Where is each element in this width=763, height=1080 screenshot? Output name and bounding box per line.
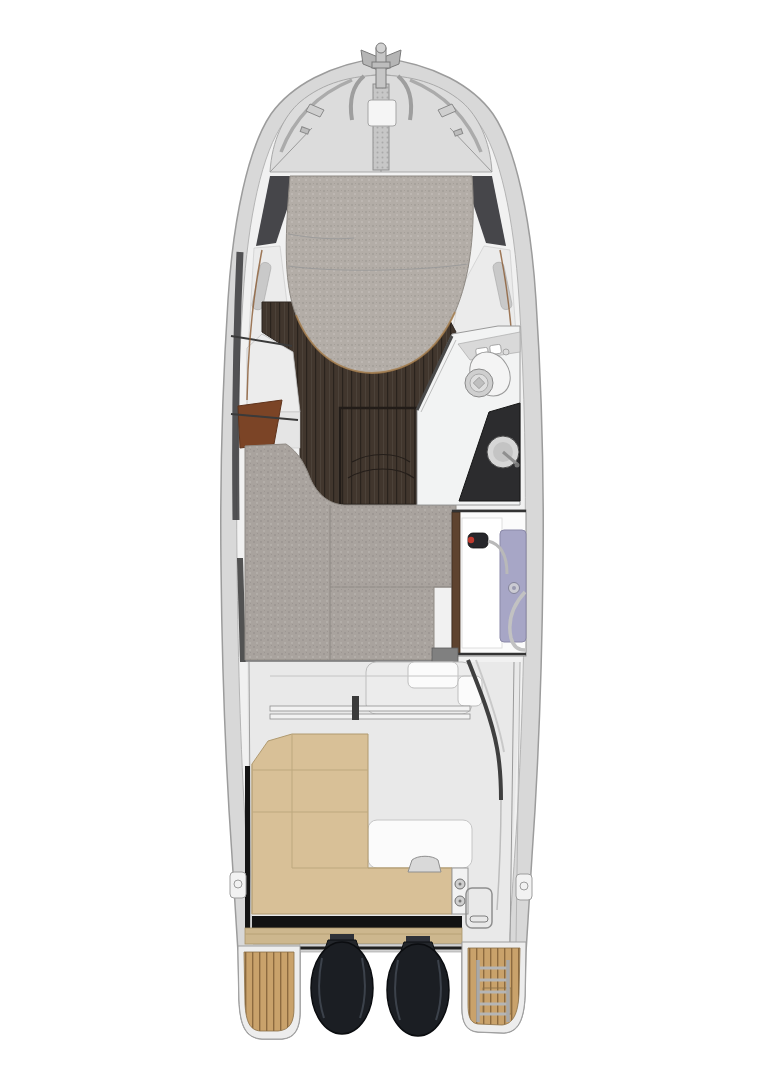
latch-dot-2 [459, 900, 462, 903]
engine-cowl-starboard [387, 944, 449, 1036]
shower-compartment [452, 510, 526, 656]
anchor-track [373, 84, 389, 170]
coaming-shadow-left [245, 766, 250, 932]
companionway-step-1 [408, 662, 458, 688]
boat-deck-plan [0, 0, 763, 1080]
companionway-sill [432, 648, 458, 663]
stern [238, 934, 526, 1039]
shower-knob-dot [512, 586, 516, 590]
boarding-ladder [478, 960, 511, 1022]
hull-shadow-left-low [240, 558, 243, 662]
latch-dot-1 [459, 883, 462, 886]
boat-plan-canvas [0, 0, 763, 1080]
cockpit [230, 648, 532, 944]
faucet-tip [515, 463, 520, 468]
foredeck [270, 43, 492, 172]
foredeck-hatch [368, 100, 396, 126]
shower-head-cap [468, 537, 474, 543]
bench-shadow-strip [252, 916, 462, 928]
gate-handle [470, 916, 488, 922]
engine-cowl-port [311, 942, 373, 1034]
shower-jamb [452, 512, 460, 654]
teak-deck-left [244, 952, 294, 1031]
door-jamb [352, 696, 359, 720]
